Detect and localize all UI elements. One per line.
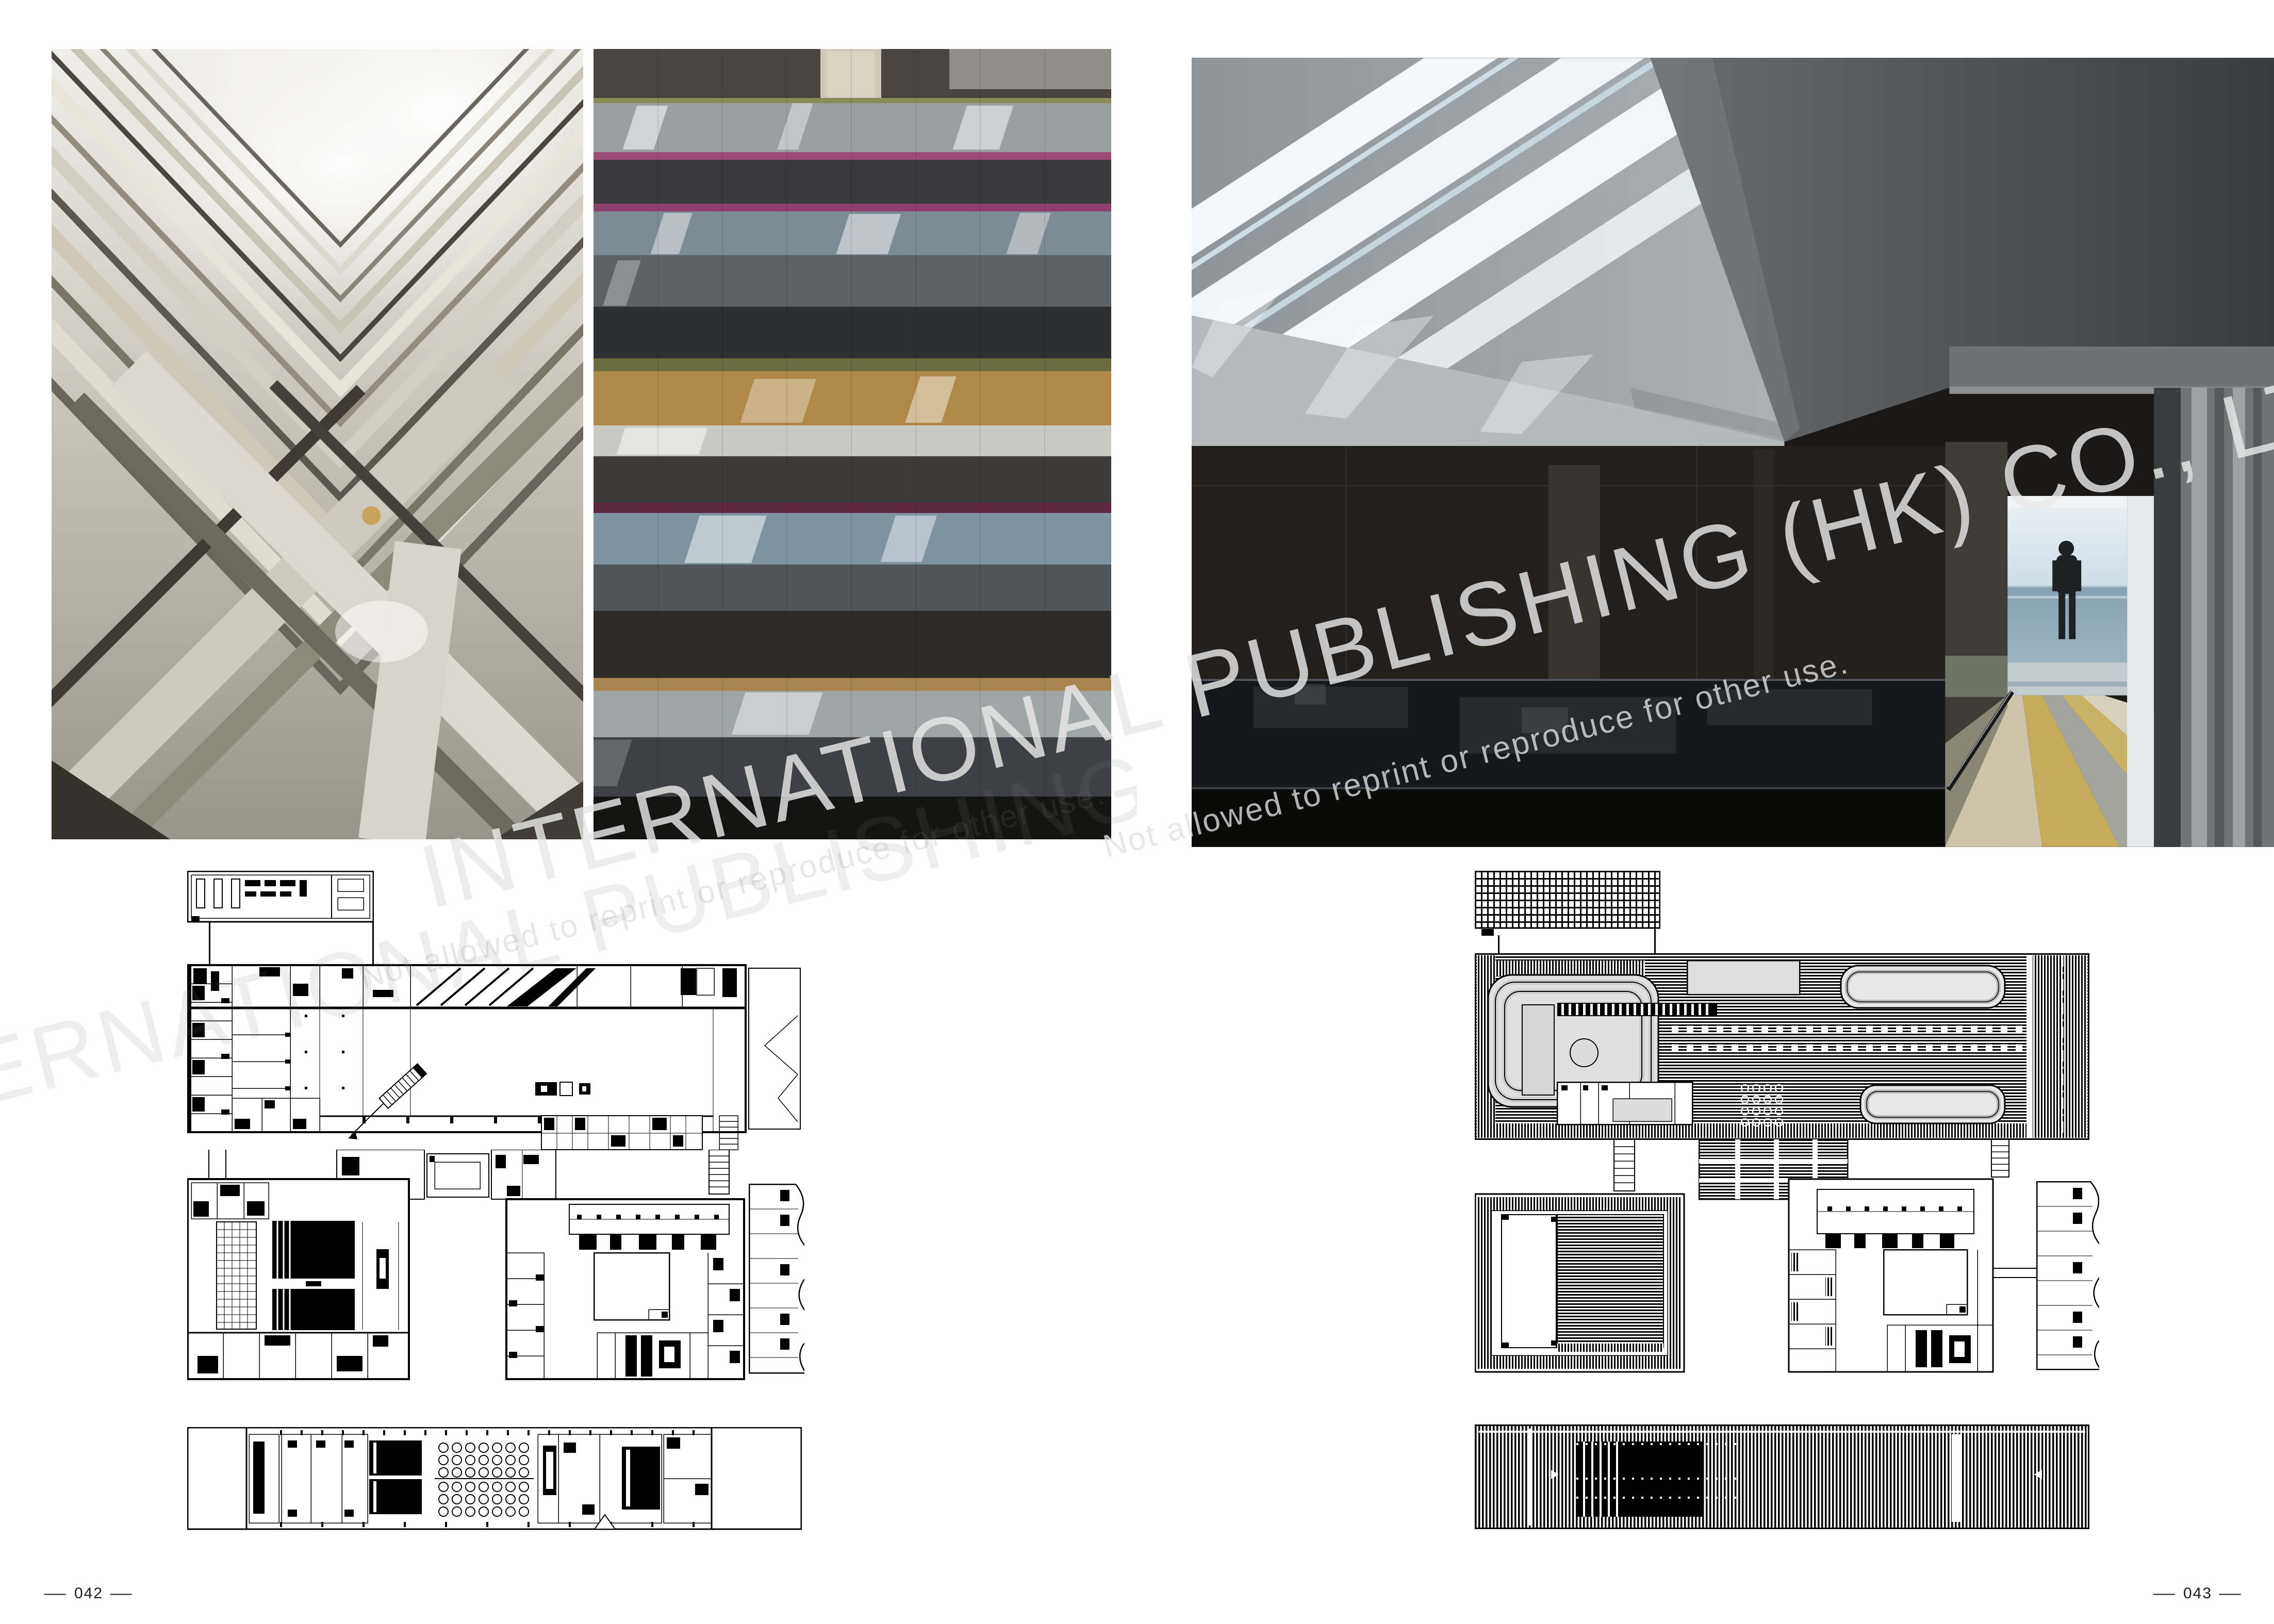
plan-left-strip: [187, 1427, 802, 1533]
plan-left-mid: [187, 1150, 804, 1385]
photo-atrium-chevrons: [52, 49, 583, 839]
page-number-left-dash2: —: [110, 1585, 134, 1602]
page-number-right: — 043 —: [2156, 1585, 2239, 1602]
page-number-right-dash1: —: [2153, 1585, 2177, 1602]
plan-right-connector-b: [1654, 929, 1656, 954]
plan-right-strip: [1475, 1424, 2089, 1532]
plan-left-strip-art: [187, 1427, 802, 1530]
plan-right-connector-a: [1498, 935, 1499, 954]
plan-left-main-art: [187, 964, 801, 1151]
plan-left-small-art: [187, 871, 374, 929]
plan-left-main: [187, 964, 801, 1153]
page-number-left-value: 042: [74, 1585, 103, 1602]
page-number-right-dash2: —: [2219, 1585, 2243, 1602]
page-number-left: — 042 —: [47, 1585, 130, 1602]
plan-left-small: [187, 871, 374, 931]
photo-striped-facade: [594, 49, 1111, 839]
plan-right-main-art: [1475, 953, 2089, 1140]
page-number-left-dash1: —: [44, 1585, 68, 1602]
photo-striped-facade-art: [594, 49, 1111, 839]
plan-right-small: [1475, 871, 1660, 940]
page-number-right-value: 043: [2183, 1585, 2212, 1602]
photo-skylit-corridor-art: [1192, 58, 2274, 847]
plan-left-connector-a: [209, 922, 210, 964]
photo-atrium-chevrons-art: [52, 49, 583, 839]
plan-right-mid: [1475, 1139, 2099, 1379]
plan-left-mid-art: [187, 1150, 804, 1383]
plan-right-main: [1475, 953, 2089, 1142]
plan-right-strip-art: [1475, 1424, 2089, 1529]
photo-skylit-corridor: [1192, 58, 2274, 847]
plan-right-small-art: [1475, 871, 1660, 938]
book-spread: { "spread": { "left_page_number": "042",…: [0, 0, 2274, 1624]
plan-left-connector-b: [372, 922, 374, 964]
plan-right-mid-art: [1475, 1139, 2099, 1377]
